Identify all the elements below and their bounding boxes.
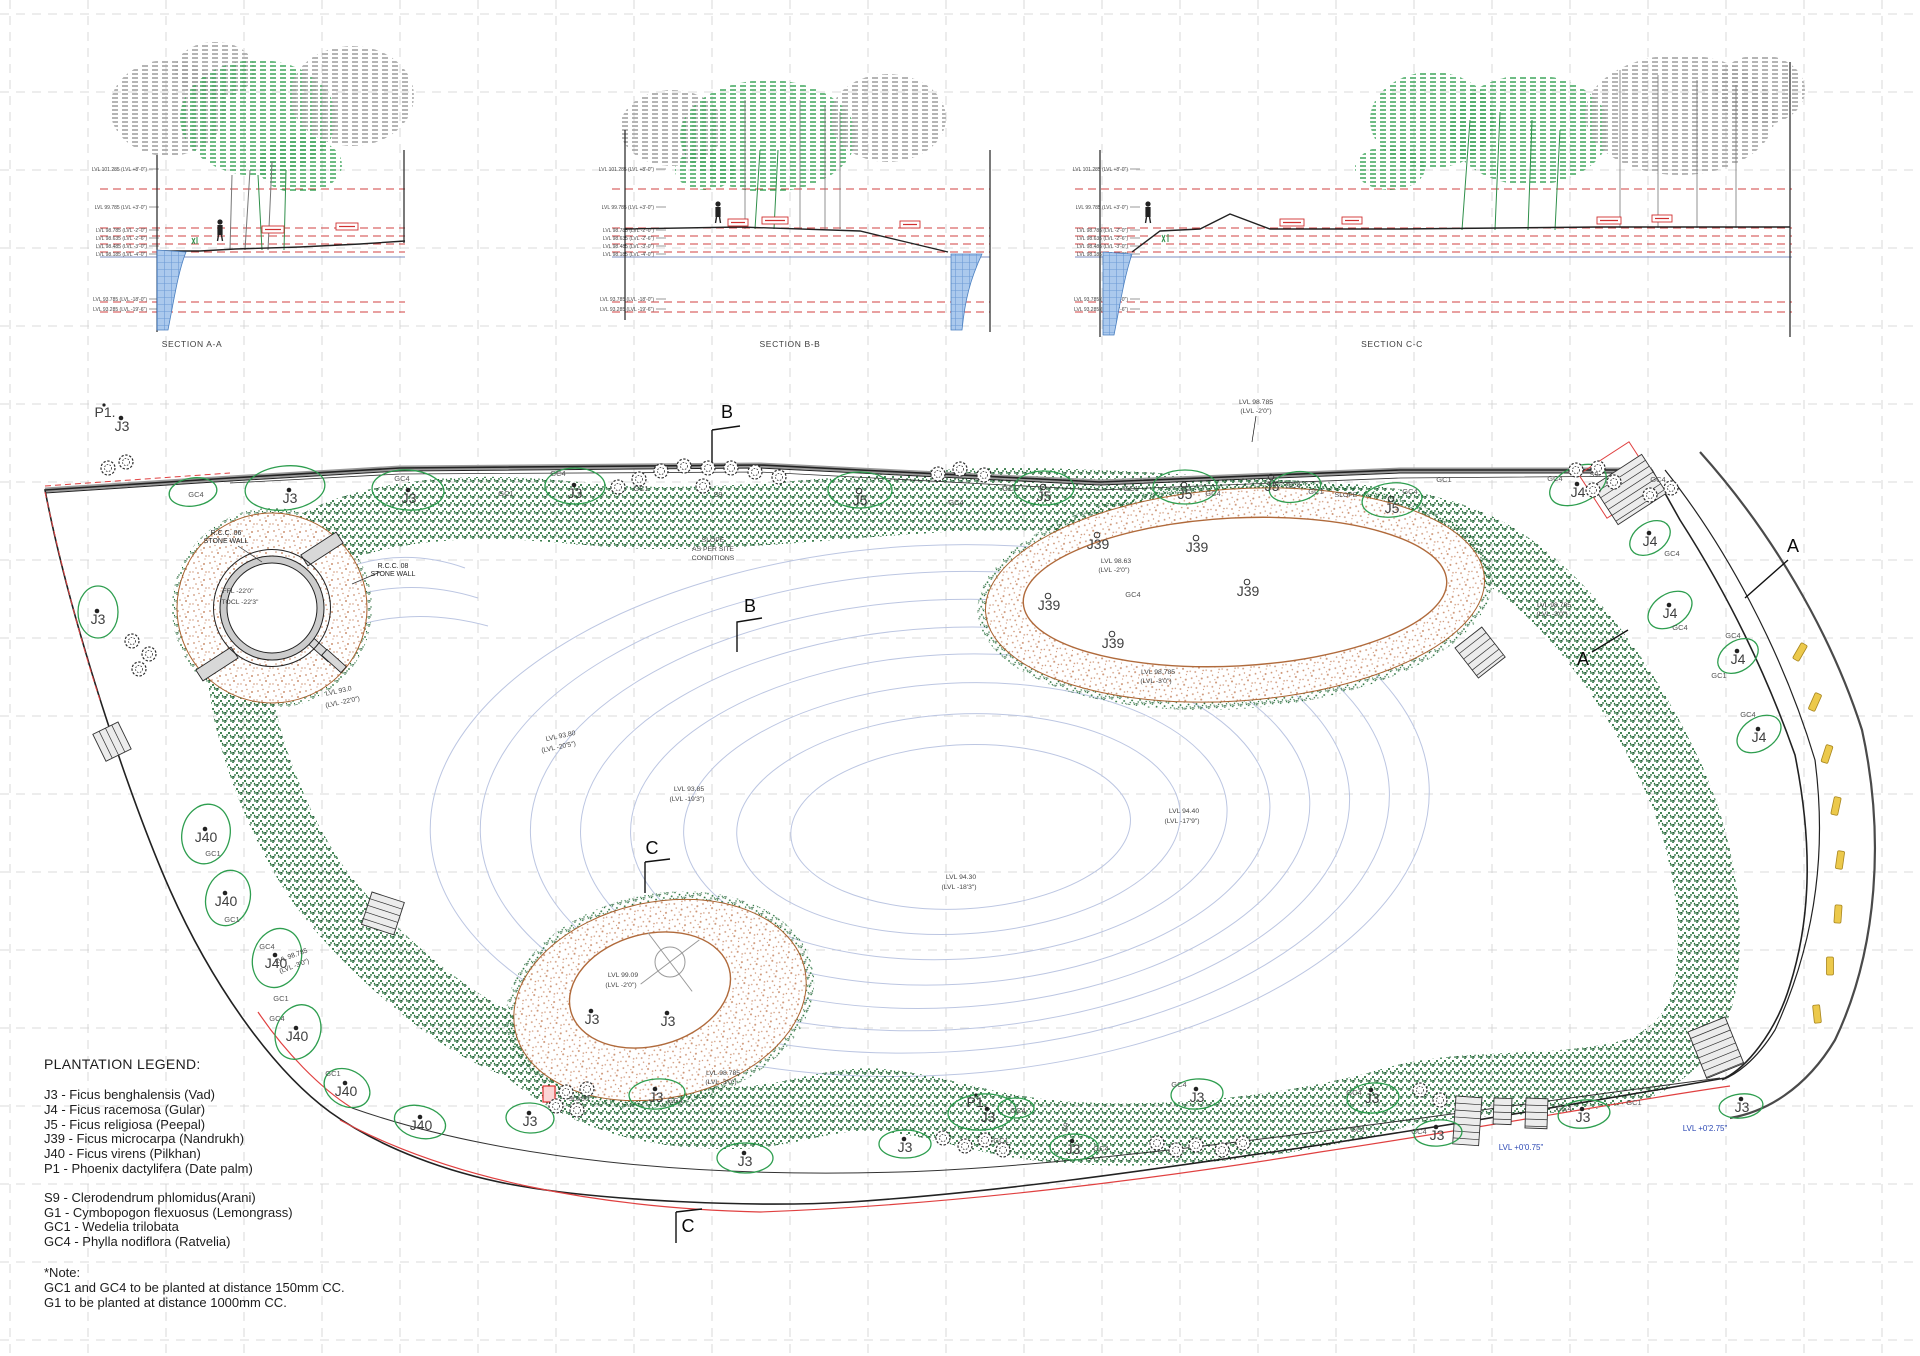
tree-symbol-icon <box>985 1107 990 1112</box>
plan-label: GC4 <box>1547 474 1562 483</box>
shrub-icon <box>611 480 625 494</box>
plan-label: (LVL -2'0") <box>1240 408 1271 415</box>
plan-label: GC4 <box>1664 549 1679 558</box>
plan-label: (LVL -3'0") <box>1536 611 1567 618</box>
tree-label: J39 <box>1186 539 1209 555</box>
plan-label: LVL 98.785 <box>1537 602 1571 609</box>
tree-label: J3 <box>523 1113 538 1129</box>
section-level-label: LVL 99.785 (LVL +3'-0") <box>95 205 148 211</box>
shrub-icon <box>958 1139 972 1153</box>
plan-label: (LVL -17'9") <box>1164 818 1199 825</box>
tree-symbol-icon <box>572 483 577 488</box>
shrub-icon <box>696 479 710 493</box>
plan-label: LVL 98.63 <box>1101 558 1131 565</box>
section-level-label: LVL 99.785 (LVL +3'-0") <box>602 205 655 211</box>
legend-item: G1 - Cymbopogon flexuosus (Lemongrass) <box>44 1206 404 1221</box>
stairs <box>1453 1096 1482 1146</box>
person-icon <box>715 201 720 206</box>
tree-label: J3 <box>1365 1090 1380 1106</box>
plan-label: GC4 <box>1205 489 1220 498</box>
plan-label: GC1 <box>1123 484 1138 493</box>
plantation-plan-sheet: LVL 101.285 (LVL +8'-0")LVL 99.785 (LVL … <box>0 0 1920 1356</box>
shrub-icon <box>125 634 139 648</box>
plan-label: GC1 <box>273 994 288 1003</box>
plan-label: SECTION B-B <box>760 339 821 349</box>
plan-label: GC4 <box>1402 487 1417 496</box>
section-c-c <box>1100 55 1805 337</box>
shrub-icon <box>701 461 715 475</box>
plan-label: GC4 <box>1093 1144 1108 1153</box>
plan-label: GC4 <box>259 942 274 951</box>
tree-symbol-icon <box>1647 531 1652 536</box>
tree-label: J3 <box>981 1109 996 1125</box>
plan-label: GC4 <box>1672 623 1687 632</box>
section-level-label: LVL 98.635 (LVL -2'-6") <box>96 236 147 242</box>
plan-label: SLOPE <box>1335 492 1358 499</box>
yellow-road-marking <box>1827 957 1834 975</box>
tree-symbol-icon <box>119 416 124 421</box>
plan-label: GC4 <box>1125 590 1140 599</box>
plan-label: LVL 98.785 <box>1141 669 1175 676</box>
shrub-icon <box>977 468 991 482</box>
scale-figures <box>217 201 1150 241</box>
plan-label: (LVL -2'0") <box>605 982 636 989</box>
person-icon <box>716 217 721 223</box>
tree-symbol-icon <box>1194 1087 1199 1092</box>
section-level-label: LVL 93.285 (LVL -19'-6") <box>1074 307 1128 313</box>
plan-label: GC4 <box>1346 1088 1361 1097</box>
plan-label: LVL 94.40 <box>1169 808 1199 815</box>
plan-label: GC4 <box>1740 710 1755 719</box>
section-level-lines: LVL 101.285 (LVL +8'-0")LVL 99.785 (LVL … <box>92 167 1792 313</box>
plan-label: GC1 <box>993 1136 1008 1145</box>
section-level-label: LVL 93.785 (LVL -18'-0") <box>93 297 147 303</box>
yellow-road-marking <box>1831 796 1842 815</box>
plan-label: (LVL -2'0") <box>1098 567 1129 574</box>
section-level-label: LVL 101.285 (LVL +8'-0") <box>92 167 147 173</box>
legend-note-title: *Note: <box>44 1266 404 1281</box>
plan-label: GC4 <box>1725 631 1740 640</box>
tree-label: J3 <box>1430 1127 1445 1143</box>
plan-label: STONE WALL <box>371 571 416 578</box>
yellow-road-marking <box>1813 1005 1822 1024</box>
tree-label: J4 <box>1731 651 1746 667</box>
shrub-icon <box>570 1103 584 1117</box>
yellow-marking <box>1834 905 1842 923</box>
plan-label: GC4 <box>394 474 409 483</box>
plan-label: GC1 <box>1350 1125 1365 1134</box>
shrub-icon <box>1607 475 1621 489</box>
section-marker-letter: B <box>744 596 756 616</box>
plan-label: GC1 <box>633 484 648 493</box>
plan-label: GC4 <box>1010 1106 1025 1115</box>
legend-item: J4 - Ficus racemosa (Gular) <box>44 1103 404 1118</box>
section-level-label: LVL 93.285 (LVL -19'-6") <box>600 307 654 313</box>
tree-symbol-icon <box>902 1137 907 1142</box>
plan-label: (LVL -19'3") <box>669 796 704 803</box>
shrub-icon <box>1586 483 1600 497</box>
tree-symbol-icon <box>294 1026 299 1031</box>
legend-item: GC1 and GC4 to be planted at distance 15… <box>44 1281 404 1296</box>
tree-label: J3 <box>283 490 298 506</box>
shrub-icon <box>1150 1136 1164 1150</box>
tree-label: J4 <box>1663 605 1678 621</box>
yellow-road-marking <box>1821 744 1833 763</box>
plan-label: LVL 94.30 <box>946 874 976 881</box>
section-marker-letter: A <box>1787 536 1799 556</box>
shrub-icon <box>142 647 156 661</box>
plan-label: LVL +0'2.75" <box>1683 1124 1728 1133</box>
tree-symbol-icon <box>1735 649 1740 654</box>
plan-label: (LVL -18'3") <box>941 884 976 891</box>
shrub-icon <box>132 662 146 676</box>
yellow-marking <box>1827 957 1834 975</box>
plan-label: GC4 <box>269 1014 284 1023</box>
plan-label: GC4 <box>1556 1104 1571 1113</box>
tree-symbol-icon <box>273 953 278 958</box>
section-marker-letter: C <box>646 838 659 858</box>
plan-label: R.C.C. 06 <box>211 530 242 537</box>
legend-title: PLANTATION LEGEND: <box>44 1056 404 1072</box>
plan-label: S9 <box>713 490 722 499</box>
yellow-road-marking <box>1792 642 1807 661</box>
tree-label: J4 <box>1571 484 1586 500</box>
shrub-icon <box>1643 488 1657 502</box>
plan-label: R.C.C. 08 <box>378 563 409 570</box>
stairs <box>1493 1098 1512 1125</box>
shrub-icon <box>1169 1143 1183 1157</box>
plan-label: AS PER SITE <box>692 546 734 553</box>
tree-symbol-icon <box>665 1011 670 1016</box>
tree-label: J5 <box>853 492 868 508</box>
section-level-label: LVL 98.185 (LVL -4'-0") <box>96 252 147 258</box>
section-b-b <box>620 74 990 332</box>
section-level-label: LVL 98.635 (LVL -2'-6") <box>603 236 654 242</box>
shrub-icon <box>119 455 133 469</box>
tree-label: J5 <box>1265 478 1280 494</box>
shrub-icon <box>101 461 115 475</box>
plan-label: GC1 <box>1626 1098 1641 1107</box>
tree-symbol-icon <box>406 488 411 493</box>
tree-symbol-icon <box>1667 603 1672 608</box>
section-marker-letter: A <box>1577 649 1589 669</box>
legend-item: GC1 - Wedelia trilobata <box>44 1220 404 1235</box>
legend-shrub-list: S9 - Clerodendrum phlomidus(Arani)G1 - C… <box>44 1191 404 1250</box>
yellow-marking <box>1835 851 1844 870</box>
shrub-icon <box>1413 1083 1427 1097</box>
shrub-icon <box>1189 1138 1203 1152</box>
tree-symbol-icon <box>589 1009 594 1014</box>
plan-label: (LVL -3'0") <box>705 1079 736 1086</box>
legend-note-list: GC1 and GC4 to be planted at distance 15… <box>44 1281 404 1311</box>
shrub-icon <box>654 464 668 478</box>
shrub-icon <box>677 459 691 473</box>
plan-label: SLOPE <box>702 537 725 544</box>
shrub-icon <box>936 1131 950 1145</box>
plan-label: GC4 <box>1650 475 1665 484</box>
plan-label: GC4 <box>1171 1080 1186 1089</box>
tree-symbol-icon <box>287 488 292 493</box>
tree-symbol-icon <box>1434 1125 1439 1130</box>
plan-label: FFL -22'0" <box>222 588 254 595</box>
tree-label: J3 <box>661 1013 676 1029</box>
plan-label: GC1 <box>1002 484 1017 493</box>
person-icon <box>715 207 720 217</box>
section-level-label: LVL 99.785 (LVL +3'-0") <box>1076 205 1129 211</box>
legend-item: GC4 - Phylla nodiflora (Ratvelia) <box>44 1235 404 1250</box>
section-level-label: LVL 98.185 (LVL -4'-0") <box>603 252 654 258</box>
plan-label: GC4 <box>1285 481 1300 490</box>
person-icon <box>1146 217 1151 223</box>
tree-label: J39 <box>1237 583 1260 599</box>
plan-label: GC1 <box>205 849 220 858</box>
section-marker-letter: B <box>721 402 733 422</box>
section-marker-letter: C <box>682 1216 695 1236</box>
shrub-icon <box>1433 1093 1447 1107</box>
tree-label: J4 <box>1643 533 1658 549</box>
shrub-icon <box>1569 463 1583 477</box>
shrub-icon <box>931 467 945 481</box>
tree-label: J3 <box>1576 1109 1591 1125</box>
legend-item: J3 - Ficus benghalensis (Vad) <box>44 1088 404 1103</box>
plan-label: GC1 <box>498 489 513 498</box>
yellow-marking <box>1808 692 1822 711</box>
person-icon <box>1145 207 1150 217</box>
tree-label: J3 <box>1190 1089 1205 1105</box>
tree-label: J40 <box>195 829 218 845</box>
tree-symbol-icon <box>1369 1088 1374 1093</box>
tree-label: J5 <box>1385 500 1400 516</box>
tree-label: J5 <box>1037 488 1052 504</box>
tree-label: J3 <box>649 1089 664 1105</box>
shrub-icon <box>1236 1136 1250 1150</box>
tree-symbol-icon <box>1575 482 1580 487</box>
yellow-marking <box>1821 744 1833 763</box>
plan-label: TOCL -22'3" <box>222 599 260 606</box>
stairs <box>93 722 131 761</box>
plan-label: GC4 <box>1411 1127 1426 1136</box>
tree-symbol-icon <box>223 891 228 896</box>
plan-label: GC1 <box>1711 671 1726 680</box>
yellow-road-marking <box>1808 692 1822 711</box>
legend-item: P1 - Phoenix dactylifera (Date palm) <box>44 1162 404 1177</box>
plan-label: LVL 98.785 <box>1239 399 1273 406</box>
yellow-road-marking <box>1834 905 1842 923</box>
tree-symbol-icon <box>203 827 208 832</box>
shrub-icon <box>748 465 762 479</box>
palm-symbol-icon <box>102 403 105 406</box>
tree-symbol-icon <box>418 1115 423 1120</box>
section-level-label: LVL 98.485 (LVL -3'-0") <box>1077 244 1128 250</box>
tree-label: J40 <box>215 893 238 909</box>
shrub-icon <box>996 1143 1010 1157</box>
plan-label: LVL +0'0.75" <box>1499 1143 1544 1152</box>
shrub-icon <box>724 461 738 475</box>
legend-item: S9 - Clerodendrum phlomidus(Arani) <box>44 1191 404 1206</box>
tree-symbol-icon <box>742 1151 747 1156</box>
section-level-label: LVL 98.785 (LVL -2'-0") <box>1077 228 1128 234</box>
legend-tree-list: J3 - Ficus benghalensis (Vad)J4 - Ficus … <box>44 1088 404 1177</box>
tree-symbol-icon <box>1070 1139 1075 1144</box>
red-annotation-tags <box>262 215 1672 233</box>
tree-label: P1. <box>966 1094 987 1110</box>
tree-label: J3 <box>1066 1141 1081 1157</box>
tree-label: J40 <box>286 1028 309 1044</box>
plan-label: (LVL -3'0") <box>1140 678 1171 685</box>
plan-label: GC1 <box>1436 475 1451 484</box>
tree-label: J3 <box>898 1139 913 1155</box>
plan-label: LVL 98.785 <box>706 1070 740 1077</box>
plan-label: CONDITIONS <box>692 555 735 562</box>
person-icon <box>217 225 222 235</box>
plan-label: GC1 <box>1308 487 1323 496</box>
section-level-label: LVL 98.485 (LVL -3'-0") <box>96 244 147 250</box>
tree-symbol-icon <box>1756 727 1761 732</box>
tree-symbol-icon <box>527 1111 532 1116</box>
shrub-icon <box>978 1133 992 1147</box>
stairs-outline <box>1493 1098 1512 1125</box>
shrub-icon <box>1215 1143 1229 1157</box>
section-level-label: LVL 98.635 (LVL -2'-6") <box>1077 236 1128 242</box>
section-level-label: LVL 93.285 (LVL -19'-6") <box>93 307 147 313</box>
plan-label: SECTION A-A <box>162 339 222 349</box>
person-icon <box>1145 201 1150 206</box>
tree-label: J40 <box>410 1117 433 1133</box>
legend-item: J39 - Ficus microcarpa (Nandrukh) <box>44 1132 404 1147</box>
yellow-road-marking <box>1835 851 1844 870</box>
stairs <box>1525 1098 1548 1129</box>
plan-label: (LVL -22'0") <box>325 695 361 709</box>
shrub-icon <box>772 470 786 484</box>
plan-label: GC4 <box>667 1096 682 1105</box>
plan-label: GC4 <box>188 490 203 499</box>
tree-label: J3 <box>568 485 583 501</box>
tree-label: J39 <box>1038 597 1061 613</box>
shrub-icon <box>953 462 967 476</box>
tree-symbol-icon <box>1580 1107 1585 1112</box>
legend-item: J40 - Ficus virens (Pilkhan) <box>44 1147 404 1162</box>
legend-item: G1 to be planted at distance 1000mm CC. <box>44 1296 404 1311</box>
tree-label: J5 <box>1178 486 1193 502</box>
tree-label: J3 <box>738 1153 753 1169</box>
stairs-outline <box>1525 1098 1548 1129</box>
legend-item: J5 - Ficus religiosa (Peepal) <box>44 1118 404 1133</box>
tree-label: J39 <box>1087 536 1110 552</box>
tree-label: J4 <box>1752 729 1767 745</box>
yellow-marking <box>1813 1005 1822 1024</box>
plan-label: SECTION C-C <box>1361 339 1423 349</box>
tree-label: J3 <box>115 418 130 434</box>
plan-label: 90x90 <box>569 1094 589 1103</box>
shrub-icon <box>1664 481 1678 495</box>
section-level-label: LVL 101.285 (LVL +8'-0") <box>599 167 654 173</box>
palm-symbol-icon <box>974 1093 977 1096</box>
section-level-label: LVL 98.485 (LVL -3'-0") <box>603 244 654 250</box>
plan-label: GC4 <box>948 498 963 507</box>
shrub-icon <box>549 1099 563 1113</box>
tree-label: J3 <box>91 611 106 627</box>
yellow-marking <box>1792 642 1807 661</box>
tree-label: P1. <box>94 404 115 420</box>
section-a-a <box>110 42 414 332</box>
plan-label: LVL 99.09 <box>608 972 638 979</box>
yellow-marking <box>1831 796 1842 815</box>
plan-label: GC4 <box>550 469 565 478</box>
tree-symbol-icon <box>653 1087 658 1092</box>
person-icon <box>217 219 222 224</box>
tree-label: J39 <box>1102 635 1125 651</box>
plan-label: STONE WALL <box>204 538 249 545</box>
tree-symbol-icon <box>1739 1097 1744 1102</box>
section-level-label: LVL 98.785 (LVL -2'-0") <box>96 228 147 234</box>
planting-bed <box>243 462 327 514</box>
tree-symbol-icon <box>95 609 100 614</box>
tree-label: J3 <box>402 490 417 506</box>
section-level-label: LVL 93.785 (LVL -18'-0") <box>600 297 654 303</box>
plan-label: LVL 93.85 <box>674 786 704 793</box>
road-yellow-markings <box>1792 642 1844 1023</box>
tree-label: J3 <box>1735 1099 1750 1115</box>
tree-label: J3 <box>585 1011 600 1027</box>
plan-label: GC1 <box>224 915 239 924</box>
plan-label: S9 <box>1589 470 1598 479</box>
plantation-legend: PLANTATION LEGEND: J3 - Ficus benghalens… <box>44 1056 404 1310</box>
